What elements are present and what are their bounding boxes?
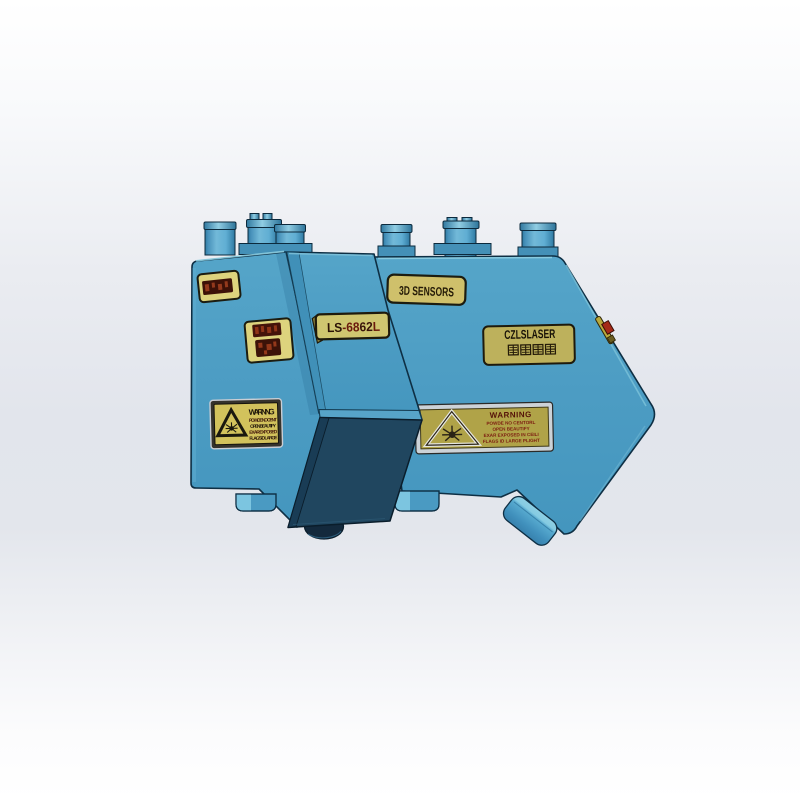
svg-text:FLAGS ID LARGE: FLAGS ID LARGE: [249, 435, 278, 442]
svg-text:POWDE NO CENT: POWDE NO CENT: [249, 417, 277, 424]
svg-text:POWDE NO CENTORL: POWDE NO CENTORL: [486, 420, 535, 426]
svg-text:WARNING: WARNING: [249, 407, 275, 417]
svg-text:3D SENSORS: 3D SENSORS: [399, 284, 454, 300]
svg-text:OPEN BEAUTIFY: OPEN BEAUTIFY: [492, 426, 529, 432]
svg-text:WARNING: WARNING: [490, 410, 532, 420]
svg-text:OPEN BEAUTIFY: OPEN BEAUTIFY: [250, 423, 277, 430]
svg-text:EXAR EXPOSED: EXAR EXPOSED: [249, 429, 278, 436]
svg-text:LS-6862L: LS-6862L: [327, 319, 380, 335]
svg-text:CZLSLASER: CZLSLASER: [504, 327, 555, 342]
